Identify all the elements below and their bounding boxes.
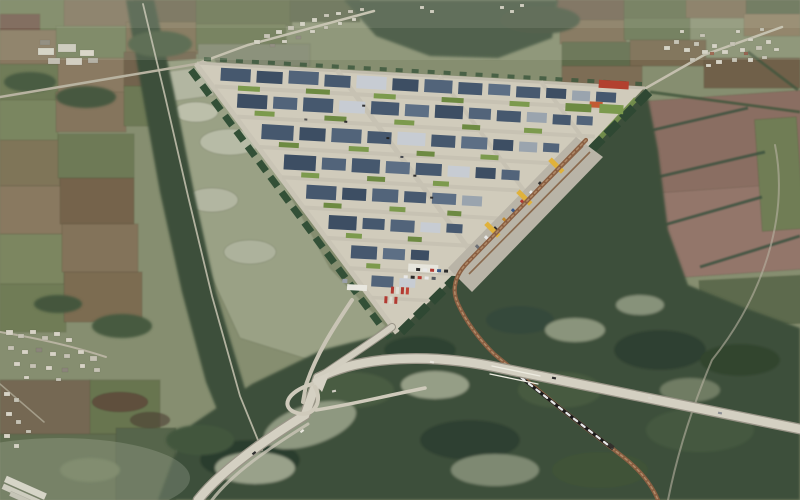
villages-shape — [18, 334, 24, 338]
industrial-park-inner-shape — [351, 245, 378, 259]
industrial-park-inner-shape — [220, 68, 251, 83]
industrial-park-inner-shape — [447, 166, 470, 178]
industrial-park-inner-shape — [367, 176, 385, 182]
industrial-park-inner-shape — [599, 104, 623, 114]
industrial-park-inner-shape — [322, 157, 347, 170]
industrial-park-inner-shape — [306, 185, 337, 201]
villages-shape — [716, 60, 722, 64]
forest-shape — [166, 425, 234, 455]
industrial-park-inner-shape — [447, 211, 461, 217]
industrial-park-inner-shape — [396, 287, 399, 294]
industrial-park-inner-shape — [416, 151, 434, 157]
villages-shape — [14, 398, 19, 402]
villages-shape — [14, 362, 20, 366]
villages-shape — [80, 364, 85, 368]
industrial-park-inner-shape — [432, 193, 457, 205]
industrial-park-inner-shape — [519, 141, 538, 152]
villages-shape — [22, 350, 28, 354]
forest-shape — [552, 452, 648, 488]
villages-shape — [46, 366, 52, 370]
forest-shape — [545, 318, 605, 342]
distance-haze — [0, 0, 800, 28]
industrial-park-inner-shape — [461, 136, 488, 149]
industrial-park-inner-shape — [424, 79, 453, 94]
industrial-park-inner-shape — [462, 195, 483, 206]
industrial-park-inner-shape — [546, 88, 567, 99]
villages-shape — [54, 332, 60, 336]
industrial-park-inner-shape — [385, 161, 410, 174]
industrial-park-inner-shape — [301, 172, 319, 178]
industrial-park-inner-shape — [565, 103, 591, 112]
industrial-park-inner-shape — [324, 74, 351, 87]
industrial-park-inner-shape — [488, 84, 511, 96]
industrial-park-inner-shape — [372, 188, 399, 202]
villages-shape — [56, 378, 61, 381]
forest-shape — [616, 295, 664, 315]
farm-fields-shape — [0, 100, 58, 142]
industrial-park-inner-shape — [425, 276, 429, 279]
industrial-park-inner-shape — [475, 167, 496, 179]
industrial-park-inner-shape — [328, 215, 357, 231]
industrial-park-inner-shape — [524, 128, 542, 134]
industrial-park-inner-shape — [371, 275, 394, 287]
industrial-park-inner-shape — [389, 296, 392, 303]
industrial-park-inner-shape — [423, 268, 427, 271]
industrial-park-inner-shape — [394, 297, 397, 304]
industrial-park-inner-shape — [283, 154, 316, 171]
industrial-park-inner-shape — [256, 71, 283, 84]
industrial-park-inner-shape — [261, 124, 294, 141]
industrial-park-inner-shape — [493, 139, 514, 151]
scene-svg — [0, 0, 800, 500]
industrial-park-inner-shape — [323, 203, 341, 209]
industrial-park-inner-shape — [413, 175, 416, 177]
forest-shape — [614, 330, 706, 370]
farm-fields-shape — [0, 380, 92, 436]
industrial-park-inner-shape — [401, 287, 404, 294]
forest-shape — [401, 371, 469, 399]
industrial-park-inner-shape — [418, 276, 422, 279]
industrial-park-inner-shape — [462, 124, 480, 130]
industrial-park-inner-shape — [362, 105, 365, 107]
villages-shape — [16, 420, 21, 424]
industrial-park-inner-shape — [331, 128, 362, 144]
industrial-park-inner-shape — [432, 277, 436, 280]
villages-shape — [4, 392, 10, 396]
industrial-park-inner-shape — [408, 236, 422, 242]
industrial-park-inner-shape — [339, 100, 366, 113]
villages-shape — [30, 330, 36, 334]
villages-shape — [64, 354, 70, 358]
industrial-park-inner-shape — [431, 135, 456, 148]
forest-shape — [92, 314, 152, 338]
industrial-park-inner-shape — [430, 197, 433, 199]
industrial-park-inner-shape — [516, 86, 541, 98]
villages-shape — [6, 412, 12, 416]
villages-shape — [706, 64, 711, 67]
industrial-park-inner-shape — [344, 121, 347, 123]
farm-fields-shape — [0, 186, 62, 234]
villages-shape — [36, 348, 42, 352]
forest-shape — [486, 306, 554, 334]
farm-fields-shape — [58, 134, 134, 178]
farm-fields-shape — [62, 224, 138, 272]
industrial-park-inner-shape — [386, 137, 389, 139]
industrial-park-inner-shape — [480, 154, 498, 160]
industrial-park-inner-shape — [390, 219, 415, 232]
industrial-park-inner-shape — [400, 156, 403, 158]
villages-shape — [94, 368, 100, 372]
industrial-park-inner-shape — [552, 114, 571, 125]
villages-shape — [62, 368, 68, 372]
industrial-park-inner-shape — [430, 269, 434, 272]
industrial-park-inner-shape — [501, 170, 520, 181]
villages-shape — [90, 356, 97, 361]
industrial-park-inner-shape — [405, 104, 430, 117]
industrial-park-inner-shape — [543, 143, 559, 153]
industrial-park-inner-shape — [444, 269, 448, 272]
industrial-park-inner-shape — [576, 116, 592, 126]
villages-shape — [30, 364, 36, 368]
farm-fields-shape — [130, 412, 170, 428]
aerial-render-viewport — [0, 0, 800, 500]
villages-shape — [6, 330, 13, 335]
farm-fields-shape — [60, 178, 134, 224]
industrial-park-inner-shape — [497, 110, 522, 122]
forest-shape — [451, 454, 539, 486]
villages-shape — [50, 352, 56, 356]
villages-shape — [4, 434, 10, 438]
industrial-park-inner-shape — [415, 163, 442, 176]
industrial-park-inner-shape — [237, 94, 268, 110]
industrial-park-inner-shape — [596, 92, 617, 103]
villages-shape — [42, 336, 48, 340]
villages-shape — [26, 430, 31, 433]
gate-canopy — [347, 284, 367, 291]
industrial-park-inner-shape — [384, 296, 387, 303]
farm-fields-shape — [224, 240, 276, 264]
industrial-park-inner-shape — [411, 276, 415, 279]
industrial-park-inner-shape — [342, 188, 367, 201]
industrial-park-inner-shape — [346, 233, 362, 239]
industrial-park-inner-shape — [572, 90, 591, 101]
industrial-park-inner-shape — [389, 206, 405, 212]
gate-booth — [342, 279, 347, 283]
industrial-park-inner-shape — [406, 287, 409, 294]
industrial-park-inner-shape — [433, 181, 449, 187]
farm-fields-shape — [0, 234, 64, 284]
villages-shape — [78, 350, 84, 354]
industrial-park-inner-shape — [371, 101, 400, 116]
industrial-park-inner-shape — [273, 97, 298, 110]
industrial-park-inner-shape — [303, 97, 334, 113]
industrial-park-inner-shape — [420, 222, 441, 233]
industrial-park-inner-shape — [527, 112, 548, 123]
forest-shape — [56, 86, 116, 108]
industrial-park-inner-shape — [362, 218, 385, 230]
farm-fields-shape — [174, 102, 218, 122]
villages-shape — [66, 338, 72, 342]
industrial-park-inner-shape — [416, 268, 420, 271]
farm-fields-shape — [92, 392, 148, 412]
industrial-park-inner-shape — [435, 105, 464, 120]
industrial-park-inner-shape — [469, 108, 492, 120]
industrial-park-inner-shape — [404, 191, 427, 203]
industrial-park-inner-shape — [288, 70, 319, 85]
industrial-park-inner-shape — [351, 158, 380, 174]
farm-fields-shape — [0, 140, 60, 186]
industrial-park-inner-shape — [397, 132, 426, 147]
industrial-park-inner-shape — [458, 82, 483, 95]
industrial-park-inner-shape — [392, 78, 419, 91]
industrial-park-inner-shape — [383, 248, 406, 260]
industrial-park-inner-shape — [411, 250, 430, 261]
industrial-park-inner-shape — [366, 263, 380, 269]
forest-shape — [420, 420, 520, 460]
industrial-park-inner-shape — [356, 75, 387, 90]
villages-shape — [8, 346, 14, 350]
industrial-park-inner-shape — [437, 269, 441, 272]
industrial-park-inner-shape — [399, 278, 415, 288]
industrial-park-inner-shape — [391, 287, 394, 294]
industrial-park-inner-shape — [299, 127, 326, 141]
villages-shape — [24, 376, 29, 379]
industrial-park-inner-shape — [446, 224, 462, 234]
red-roof-building — [599, 80, 629, 90]
forest-shape — [34, 295, 82, 313]
industrial-park-inner-shape — [304, 118, 307, 120]
industrial-park-inner-shape — [404, 275, 408, 278]
